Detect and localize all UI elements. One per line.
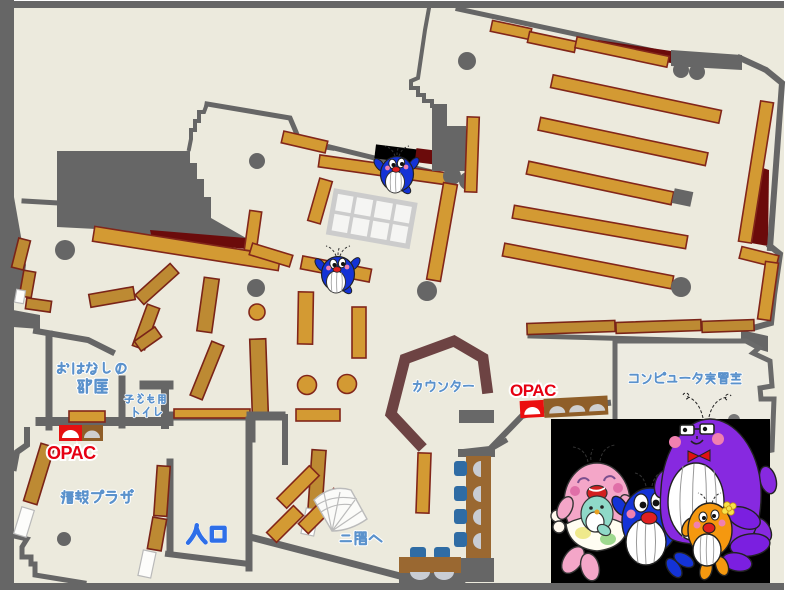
svg-text:OPAC: OPAC	[47, 443, 96, 463]
svg-text:OPAC: OPAC	[510, 381, 556, 400]
